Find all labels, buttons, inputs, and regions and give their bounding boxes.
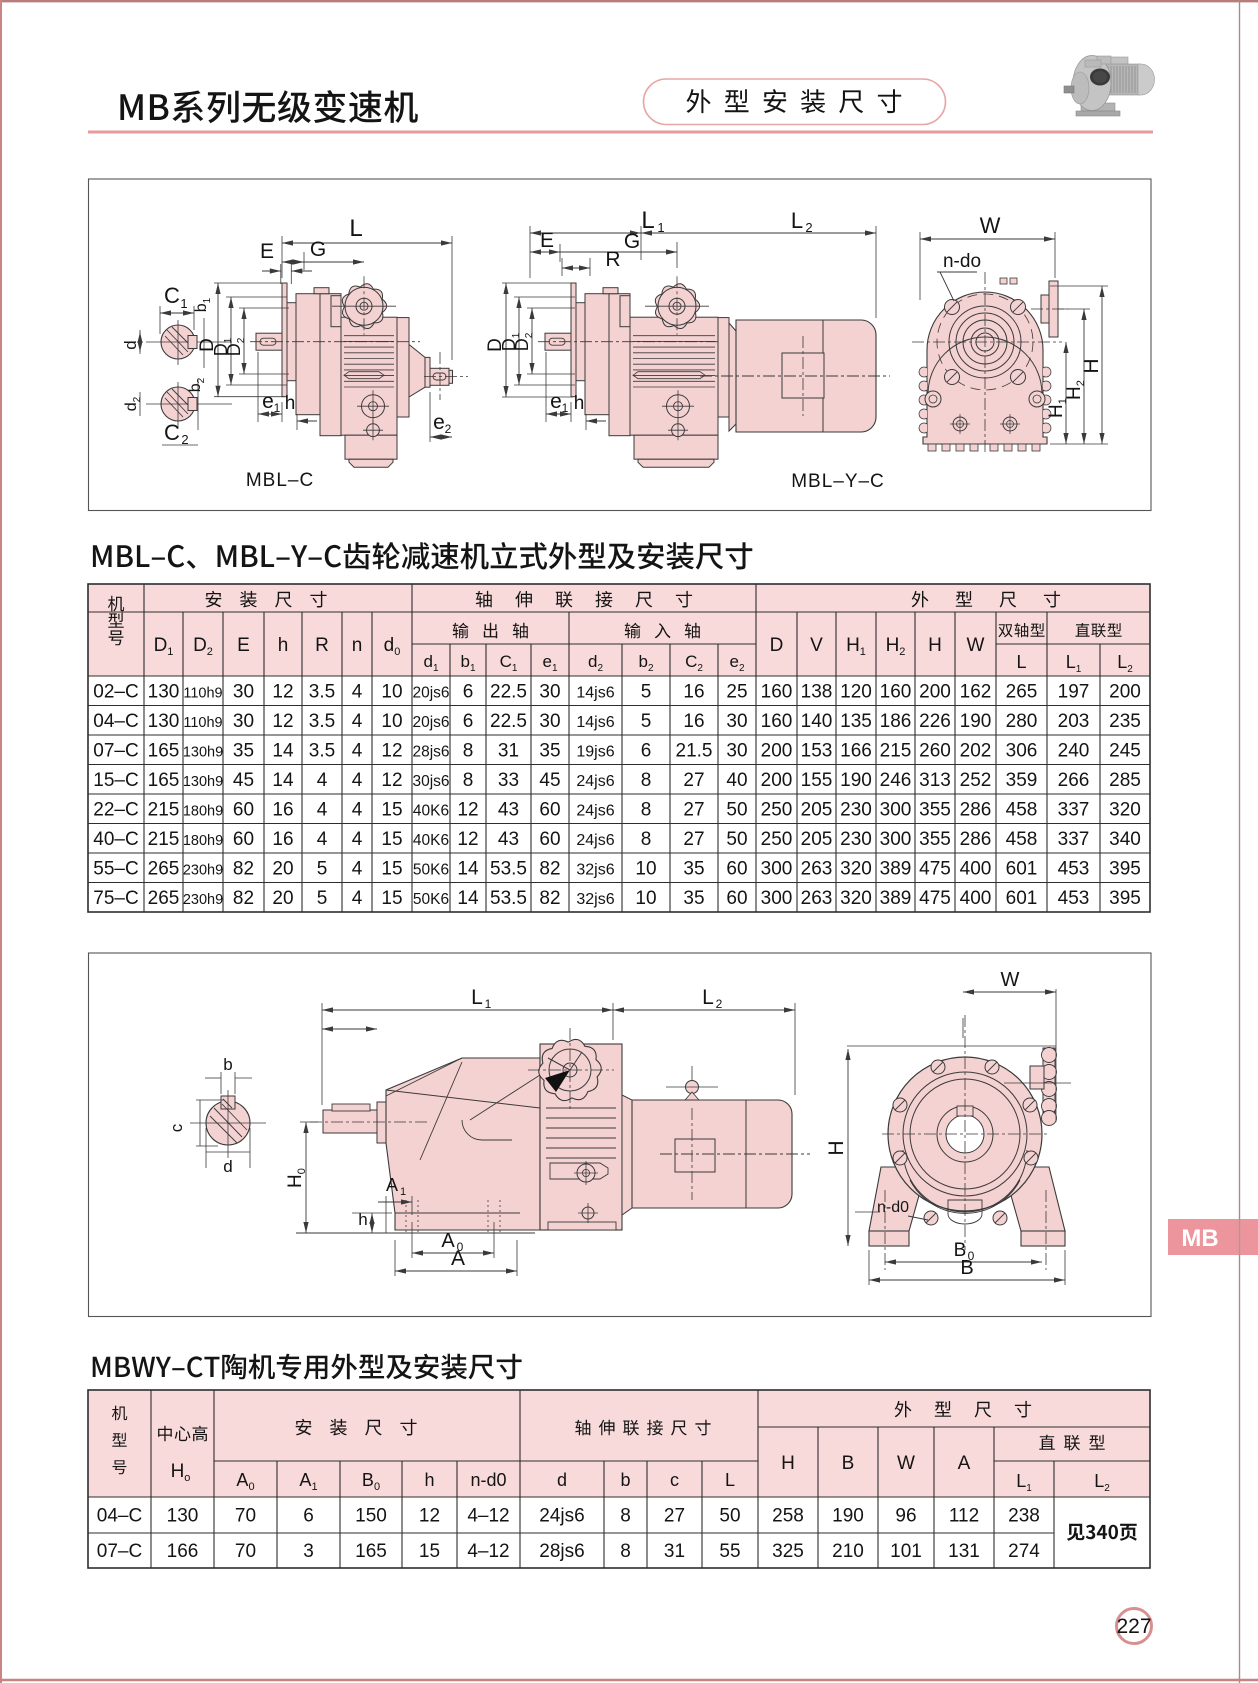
svg-text:190: 190 (960, 711, 992, 732)
svg-text:162: 162 (960, 681, 992, 702)
svg-text:8: 8 (463, 740, 474, 761)
svg-text:266: 266 (1058, 770, 1090, 791)
svg-text:14js6: 14js6 (576, 714, 614, 731)
svg-text:337: 337 (1058, 799, 1090, 820)
svg-text:130h9: 130h9 (183, 744, 223, 760)
svg-text:82: 82 (233, 858, 254, 879)
svg-text:4: 4 (352, 829, 363, 850)
svg-text:82: 82 (539, 858, 560, 879)
svg-text:35: 35 (683, 888, 704, 909)
svg-text:20: 20 (272, 858, 293, 879)
svg-text:400: 400 (960, 888, 992, 909)
svg-text:340: 340 (1109, 829, 1141, 850)
svg-text:15–C: 15–C (93, 770, 138, 791)
svg-text:197: 197 (1058, 681, 1090, 702)
svg-text:20js6: 20js6 (412, 684, 449, 701)
svg-text:250: 250 (761, 799, 793, 820)
svg-text:L: L (641, 207, 654, 234)
svg-text:n-d0: n-d0 (877, 1199, 909, 1216)
svg-text:4: 4 (317, 829, 328, 850)
svg-text:60: 60 (726, 888, 747, 909)
svg-text:601: 601 (1006, 858, 1038, 879)
svg-text:27: 27 (683, 829, 704, 850)
svg-text:50: 50 (726, 829, 747, 850)
svg-text:389: 389 (880, 858, 912, 879)
svg-text:101: 101 (890, 1541, 922, 1562)
svg-text:b1: b1 (193, 297, 213, 312)
svg-text:230: 230 (840, 829, 872, 850)
svg-text:155: 155 (801, 770, 833, 791)
svg-text:300: 300 (761, 858, 793, 879)
svg-text:210: 210 (832, 1541, 864, 1562)
svg-text:G: G (310, 238, 326, 261)
svg-text:263: 263 (801, 888, 833, 909)
svg-text:22.5: 22.5 (490, 681, 527, 702)
svg-text:4: 4 (352, 799, 363, 820)
svg-text:MB: MB (1181, 1225, 1218, 1252)
svg-text:300: 300 (880, 799, 912, 820)
svg-text:32js6: 32js6 (576, 861, 614, 878)
svg-text:258: 258 (772, 1506, 804, 1527)
svg-text:C: C (164, 283, 180, 308)
svg-text:96: 96 (895, 1506, 916, 1527)
svg-text:265: 265 (1006, 681, 1038, 702)
svg-text:6: 6 (463, 711, 474, 732)
svg-text:60: 60 (539, 829, 560, 850)
svg-text:b2: b2 (187, 377, 207, 392)
svg-text:35: 35 (539, 740, 560, 761)
svg-text:70: 70 (235, 1506, 256, 1527)
svg-text:10: 10 (635, 888, 656, 909)
svg-text:45: 45 (539, 770, 560, 791)
svg-text:H2: H2 (1064, 380, 1087, 400)
svg-text:33: 33 (498, 770, 519, 791)
svg-text:15: 15 (381, 888, 402, 909)
svg-text:165: 165 (148, 770, 180, 791)
svg-text:W: W (980, 213, 1001, 238)
svg-text:b: b (223, 1055, 232, 1074)
svg-text:L: L (725, 1470, 735, 1490)
svg-text:230: 230 (840, 799, 872, 820)
svg-text:320: 320 (1109, 799, 1141, 820)
svg-text:e: e (262, 390, 274, 413)
svg-text:8: 8 (641, 829, 652, 850)
svg-text:19js6: 19js6 (576, 743, 614, 760)
svg-text:d: d (223, 1157, 232, 1176)
svg-text:453: 453 (1058, 888, 1090, 909)
svg-text:8: 8 (641, 770, 652, 791)
svg-text:337: 337 (1058, 829, 1090, 850)
svg-text:14: 14 (457, 888, 479, 909)
svg-text:31: 31 (498, 740, 519, 761)
svg-text:325: 325 (772, 1541, 804, 1562)
svg-text:40K6: 40K6 (413, 802, 449, 819)
svg-text:263: 263 (801, 858, 833, 879)
svg-text:260: 260 (919, 740, 951, 761)
svg-text:60: 60 (726, 858, 747, 879)
svg-text:2: 2 (716, 997, 723, 1011)
svg-text:R: R (315, 635, 329, 656)
svg-text:15: 15 (381, 799, 402, 820)
svg-text:40: 40 (726, 770, 747, 791)
svg-text:12: 12 (457, 799, 478, 820)
svg-text:14js6: 14js6 (576, 684, 614, 701)
svg-text:215: 215 (148, 799, 180, 820)
svg-text:227: 227 (1116, 1615, 1151, 1638)
svg-text:286: 286 (960, 799, 992, 820)
svg-text:130: 130 (148, 681, 180, 702)
svg-text:45: 45 (233, 770, 254, 791)
svg-text:H: H (928, 635, 942, 656)
svg-text:A: A (386, 1175, 398, 1195)
svg-text:12: 12 (381, 770, 402, 791)
svg-text:n: n (352, 635, 363, 656)
svg-text:30js6: 30js6 (412, 773, 449, 790)
svg-text:L: L (702, 986, 714, 1009)
svg-text:355: 355 (919, 799, 951, 820)
svg-text:h: h (424, 1470, 434, 1490)
svg-text:4: 4 (317, 770, 328, 791)
svg-text:160: 160 (761, 711, 793, 732)
svg-text:3.5: 3.5 (309, 740, 335, 761)
svg-text:21.5: 21.5 (676, 740, 713, 761)
svg-text:5: 5 (317, 858, 328, 879)
svg-text:205: 205 (801, 829, 833, 850)
svg-text:d: d (121, 340, 140, 349)
svg-text:B: B (842, 1453, 855, 1474)
svg-text:10: 10 (381, 711, 402, 732)
svg-text:A: A (958, 1453, 971, 1474)
svg-text:24js6: 24js6 (576, 773, 614, 790)
svg-text:82: 82 (233, 888, 254, 909)
svg-text:286: 286 (960, 829, 992, 850)
svg-text:16: 16 (272, 829, 293, 850)
svg-text:MBL–C: MBL–C (246, 470, 314, 491)
svg-text:27: 27 (683, 770, 704, 791)
svg-text:H: H (1080, 358, 1103, 373)
svg-text:10: 10 (381, 681, 402, 702)
svg-text:60: 60 (233, 799, 254, 820)
svg-text:203: 203 (1058, 711, 1090, 732)
svg-text:60: 60 (233, 829, 254, 850)
svg-text:4: 4 (352, 681, 363, 702)
svg-text:160: 160 (880, 681, 912, 702)
svg-text:165: 165 (148, 740, 180, 761)
svg-text:246: 246 (880, 770, 912, 791)
svg-text:320: 320 (840, 888, 872, 909)
svg-text:04–C: 04–C (93, 711, 138, 732)
svg-text:285: 285 (1109, 770, 1141, 791)
svg-text:8: 8 (620, 1541, 631, 1562)
svg-text:07–C: 07–C (93, 740, 138, 761)
svg-text:28js6: 28js6 (412, 743, 449, 760)
svg-text:W: W (967, 635, 985, 656)
svg-text:30: 30 (233, 711, 254, 732)
svg-text:130: 130 (148, 711, 180, 732)
svg-text:313: 313 (919, 770, 951, 791)
svg-text:12: 12 (272, 711, 293, 732)
svg-text:30: 30 (726, 711, 747, 732)
svg-text:320: 320 (840, 858, 872, 879)
svg-text:32js6: 32js6 (576, 891, 614, 908)
svg-text:395: 395 (1109, 858, 1141, 879)
svg-text:1: 1 (400, 1186, 406, 1198)
svg-text:E: E (540, 229, 554, 252)
svg-text:274: 274 (1008, 1541, 1040, 1562)
svg-text:50: 50 (726, 799, 747, 820)
svg-text:3.5: 3.5 (309, 711, 335, 732)
svg-text:4: 4 (352, 858, 363, 879)
svg-text:40K6: 40K6 (413, 832, 449, 849)
svg-text:215: 215 (880, 740, 912, 761)
svg-text:355: 355 (919, 829, 951, 850)
svg-text:35: 35 (683, 858, 704, 879)
svg-text:359: 359 (1006, 770, 1038, 791)
svg-text:601: 601 (1006, 888, 1038, 909)
svg-text:W: W (897, 1453, 915, 1474)
svg-text:R: R (605, 248, 620, 271)
svg-text:475: 475 (919, 858, 951, 879)
svg-text:B: B (960, 1257, 973, 1279)
svg-text:250: 250 (761, 829, 793, 850)
svg-text:190: 190 (832, 1506, 864, 1527)
svg-text:82: 82 (539, 888, 560, 909)
svg-text:135: 135 (840, 711, 872, 732)
svg-text:226: 226 (919, 711, 951, 732)
svg-text:200: 200 (1109, 681, 1141, 702)
svg-text:4–12: 4–12 (467, 1541, 509, 1562)
svg-text:6: 6 (463, 681, 474, 702)
svg-text:265: 265 (148, 858, 180, 879)
svg-text:30: 30 (539, 711, 560, 732)
svg-text:230h9: 230h9 (183, 862, 223, 878)
svg-text:16: 16 (683, 711, 704, 732)
svg-text:50K6: 50K6 (413, 891, 449, 908)
svg-text:8: 8 (641, 799, 652, 820)
svg-text:22.5: 22.5 (490, 711, 527, 732)
svg-text:389: 389 (880, 888, 912, 909)
svg-text:280: 280 (1006, 711, 1038, 732)
svg-text:e: e (550, 390, 562, 413)
svg-text:50K6: 50K6 (413, 861, 449, 878)
svg-text:12: 12 (381, 740, 402, 761)
svg-text:W: W (1001, 969, 1020, 991)
svg-text:160: 160 (761, 681, 793, 702)
svg-text:L: L (349, 215, 362, 242)
svg-text:1: 1 (274, 401, 281, 415)
svg-text:265: 265 (148, 888, 180, 909)
svg-text:b: b (620, 1470, 630, 1490)
svg-text:A: A (451, 1247, 465, 1270)
svg-text:h: h (285, 393, 296, 414)
svg-text:15: 15 (419, 1541, 440, 1562)
svg-text:300: 300 (880, 829, 912, 850)
svg-text:24js6: 24js6 (576, 802, 614, 819)
svg-text:8: 8 (463, 770, 474, 791)
svg-text:30: 30 (726, 740, 747, 761)
svg-text:205: 205 (801, 799, 833, 820)
svg-text:16: 16 (683, 681, 704, 702)
svg-text:306: 306 (1006, 740, 1038, 761)
svg-text:e: e (433, 411, 445, 434)
svg-text:12: 12 (419, 1506, 440, 1527)
svg-text:150: 150 (355, 1506, 387, 1527)
svg-text:22–C: 22–C (93, 799, 138, 820)
svg-text:180h9: 180h9 (183, 833, 223, 849)
svg-text:L: L (471, 986, 483, 1009)
svg-text:400: 400 (960, 858, 992, 879)
svg-text:20js6: 20js6 (412, 714, 449, 731)
svg-text:H: H (781, 1453, 795, 1474)
svg-text:14: 14 (457, 858, 479, 879)
svg-text:131: 131 (948, 1541, 980, 1562)
svg-text:53.5: 53.5 (490, 888, 527, 909)
svg-text:53.5: 53.5 (490, 858, 527, 879)
svg-text:43: 43 (498, 799, 519, 820)
svg-text:190: 190 (840, 770, 872, 791)
svg-text:55–C: 55–C (93, 858, 138, 879)
svg-text:h: h (574, 393, 585, 414)
svg-text:5: 5 (641, 711, 652, 732)
svg-text:07–C: 07–C (97, 1541, 142, 1562)
svg-text:4: 4 (352, 770, 363, 791)
svg-text:202: 202 (960, 740, 992, 761)
svg-text:d: d (557, 1470, 567, 1490)
svg-text:24js6: 24js6 (576, 832, 614, 849)
svg-text:30: 30 (539, 681, 560, 702)
svg-text:55: 55 (719, 1541, 740, 1562)
svg-text:130h9: 130h9 (183, 774, 223, 790)
svg-text:16: 16 (272, 799, 293, 820)
svg-text:5: 5 (641, 681, 652, 702)
svg-text:4–12: 4–12 (467, 1506, 509, 1527)
svg-text:V: V (810, 635, 823, 656)
svg-text:40–C: 40–C (93, 829, 138, 850)
svg-text:n-d0: n-d0 (470, 1470, 506, 1490)
svg-text:1: 1 (562, 401, 569, 415)
svg-text:200: 200 (761, 770, 793, 791)
svg-text:238: 238 (1008, 1506, 1040, 1527)
svg-text:15: 15 (381, 858, 402, 879)
svg-text:12: 12 (272, 681, 293, 702)
svg-text:200: 200 (919, 681, 951, 702)
svg-text:1: 1 (180, 296, 187, 311)
svg-text:6: 6 (303, 1506, 314, 1527)
svg-text:C: C (164, 420, 180, 445)
svg-text:27: 27 (664, 1506, 685, 1527)
svg-text:h: h (278, 635, 289, 656)
svg-text:112: 112 (949, 1506, 979, 1527)
svg-text:12: 12 (457, 829, 478, 850)
svg-text:5: 5 (317, 888, 328, 909)
svg-text:50: 50 (719, 1506, 740, 1527)
svg-text:10: 10 (635, 858, 656, 879)
svg-text:H0: H0 (285, 1168, 308, 1188)
svg-text:30: 30 (233, 681, 254, 702)
svg-text:165: 165 (355, 1541, 387, 1562)
svg-text:240: 240 (1058, 740, 1090, 761)
svg-text:43: 43 (498, 829, 519, 850)
svg-text:28js6: 28js6 (539, 1541, 584, 1562)
svg-text:475: 475 (919, 888, 951, 909)
svg-text:1: 1 (485, 997, 492, 1011)
svg-text:G: G (624, 230, 640, 253)
svg-text:60: 60 (539, 799, 560, 820)
svg-text:n-do: n-do (943, 251, 981, 272)
svg-text:3.5: 3.5 (309, 681, 335, 702)
svg-text:2: 2 (805, 220, 812, 235)
svg-text:4: 4 (352, 740, 363, 761)
svg-text:245: 245 (1109, 740, 1141, 761)
svg-text:MBL–Y–C: MBL–Y–C (791, 471, 885, 492)
svg-text:180h9: 180h9 (183, 803, 223, 819)
svg-text:235: 235 (1109, 711, 1141, 732)
svg-text:2: 2 (445, 422, 452, 436)
svg-text:L: L (791, 208, 803, 233)
svg-text:6: 6 (641, 740, 652, 761)
svg-text:L: L (1016, 652, 1026, 672)
svg-text:35: 35 (233, 740, 254, 761)
svg-text:230h9: 230h9 (183, 892, 223, 908)
svg-text:24js6: 24js6 (539, 1506, 584, 1527)
svg-text:138: 138 (801, 681, 833, 702)
svg-text:15: 15 (381, 829, 402, 850)
svg-text:04–C: 04–C (97, 1506, 142, 1527)
svg-text:14: 14 (272, 740, 294, 761)
svg-text:215: 215 (148, 829, 180, 850)
svg-text:H: H (825, 1140, 848, 1155)
svg-text:200: 200 (761, 740, 793, 761)
svg-text:20: 20 (272, 888, 293, 909)
svg-text:458: 458 (1006, 829, 1038, 850)
svg-text:395: 395 (1109, 888, 1141, 909)
svg-text:153: 153 (801, 740, 833, 761)
svg-text:27: 27 (683, 799, 704, 820)
svg-text:453: 453 (1058, 858, 1090, 879)
svg-text:02–C: 02–C (93, 681, 138, 702)
svg-text:25: 25 (726, 681, 747, 702)
svg-text:130: 130 (167, 1506, 199, 1527)
svg-text:4: 4 (317, 799, 328, 820)
svg-text:166: 166 (167, 1541, 199, 1562)
svg-text:4: 4 (352, 711, 363, 732)
svg-text:120: 120 (840, 681, 872, 702)
svg-text:14: 14 (272, 770, 294, 791)
svg-text:4: 4 (352, 888, 363, 909)
svg-text:166: 166 (840, 740, 872, 761)
svg-text:110h9: 110h9 (183, 685, 222, 701)
svg-text:c: c (167, 1123, 186, 1132)
svg-text:E: E (237, 635, 250, 656)
svg-text:8: 8 (620, 1506, 631, 1527)
svg-text:140: 140 (801, 711, 833, 732)
svg-text:186: 186 (880, 711, 912, 732)
svg-text:300: 300 (761, 888, 793, 909)
svg-text:458: 458 (1006, 799, 1038, 820)
svg-text:252: 252 (960, 770, 992, 791)
svg-text:1: 1 (657, 220, 664, 235)
svg-text:70: 70 (235, 1541, 256, 1562)
svg-text:110h9: 110h9 (183, 715, 222, 731)
svg-text:E: E (260, 240, 274, 263)
svg-text:75–C: 75–C (93, 888, 138, 909)
svg-text:D: D (770, 635, 784, 656)
svg-text:31: 31 (664, 1541, 685, 1562)
svg-text:c: c (670, 1470, 679, 1490)
svg-text:3: 3 (303, 1541, 314, 1562)
